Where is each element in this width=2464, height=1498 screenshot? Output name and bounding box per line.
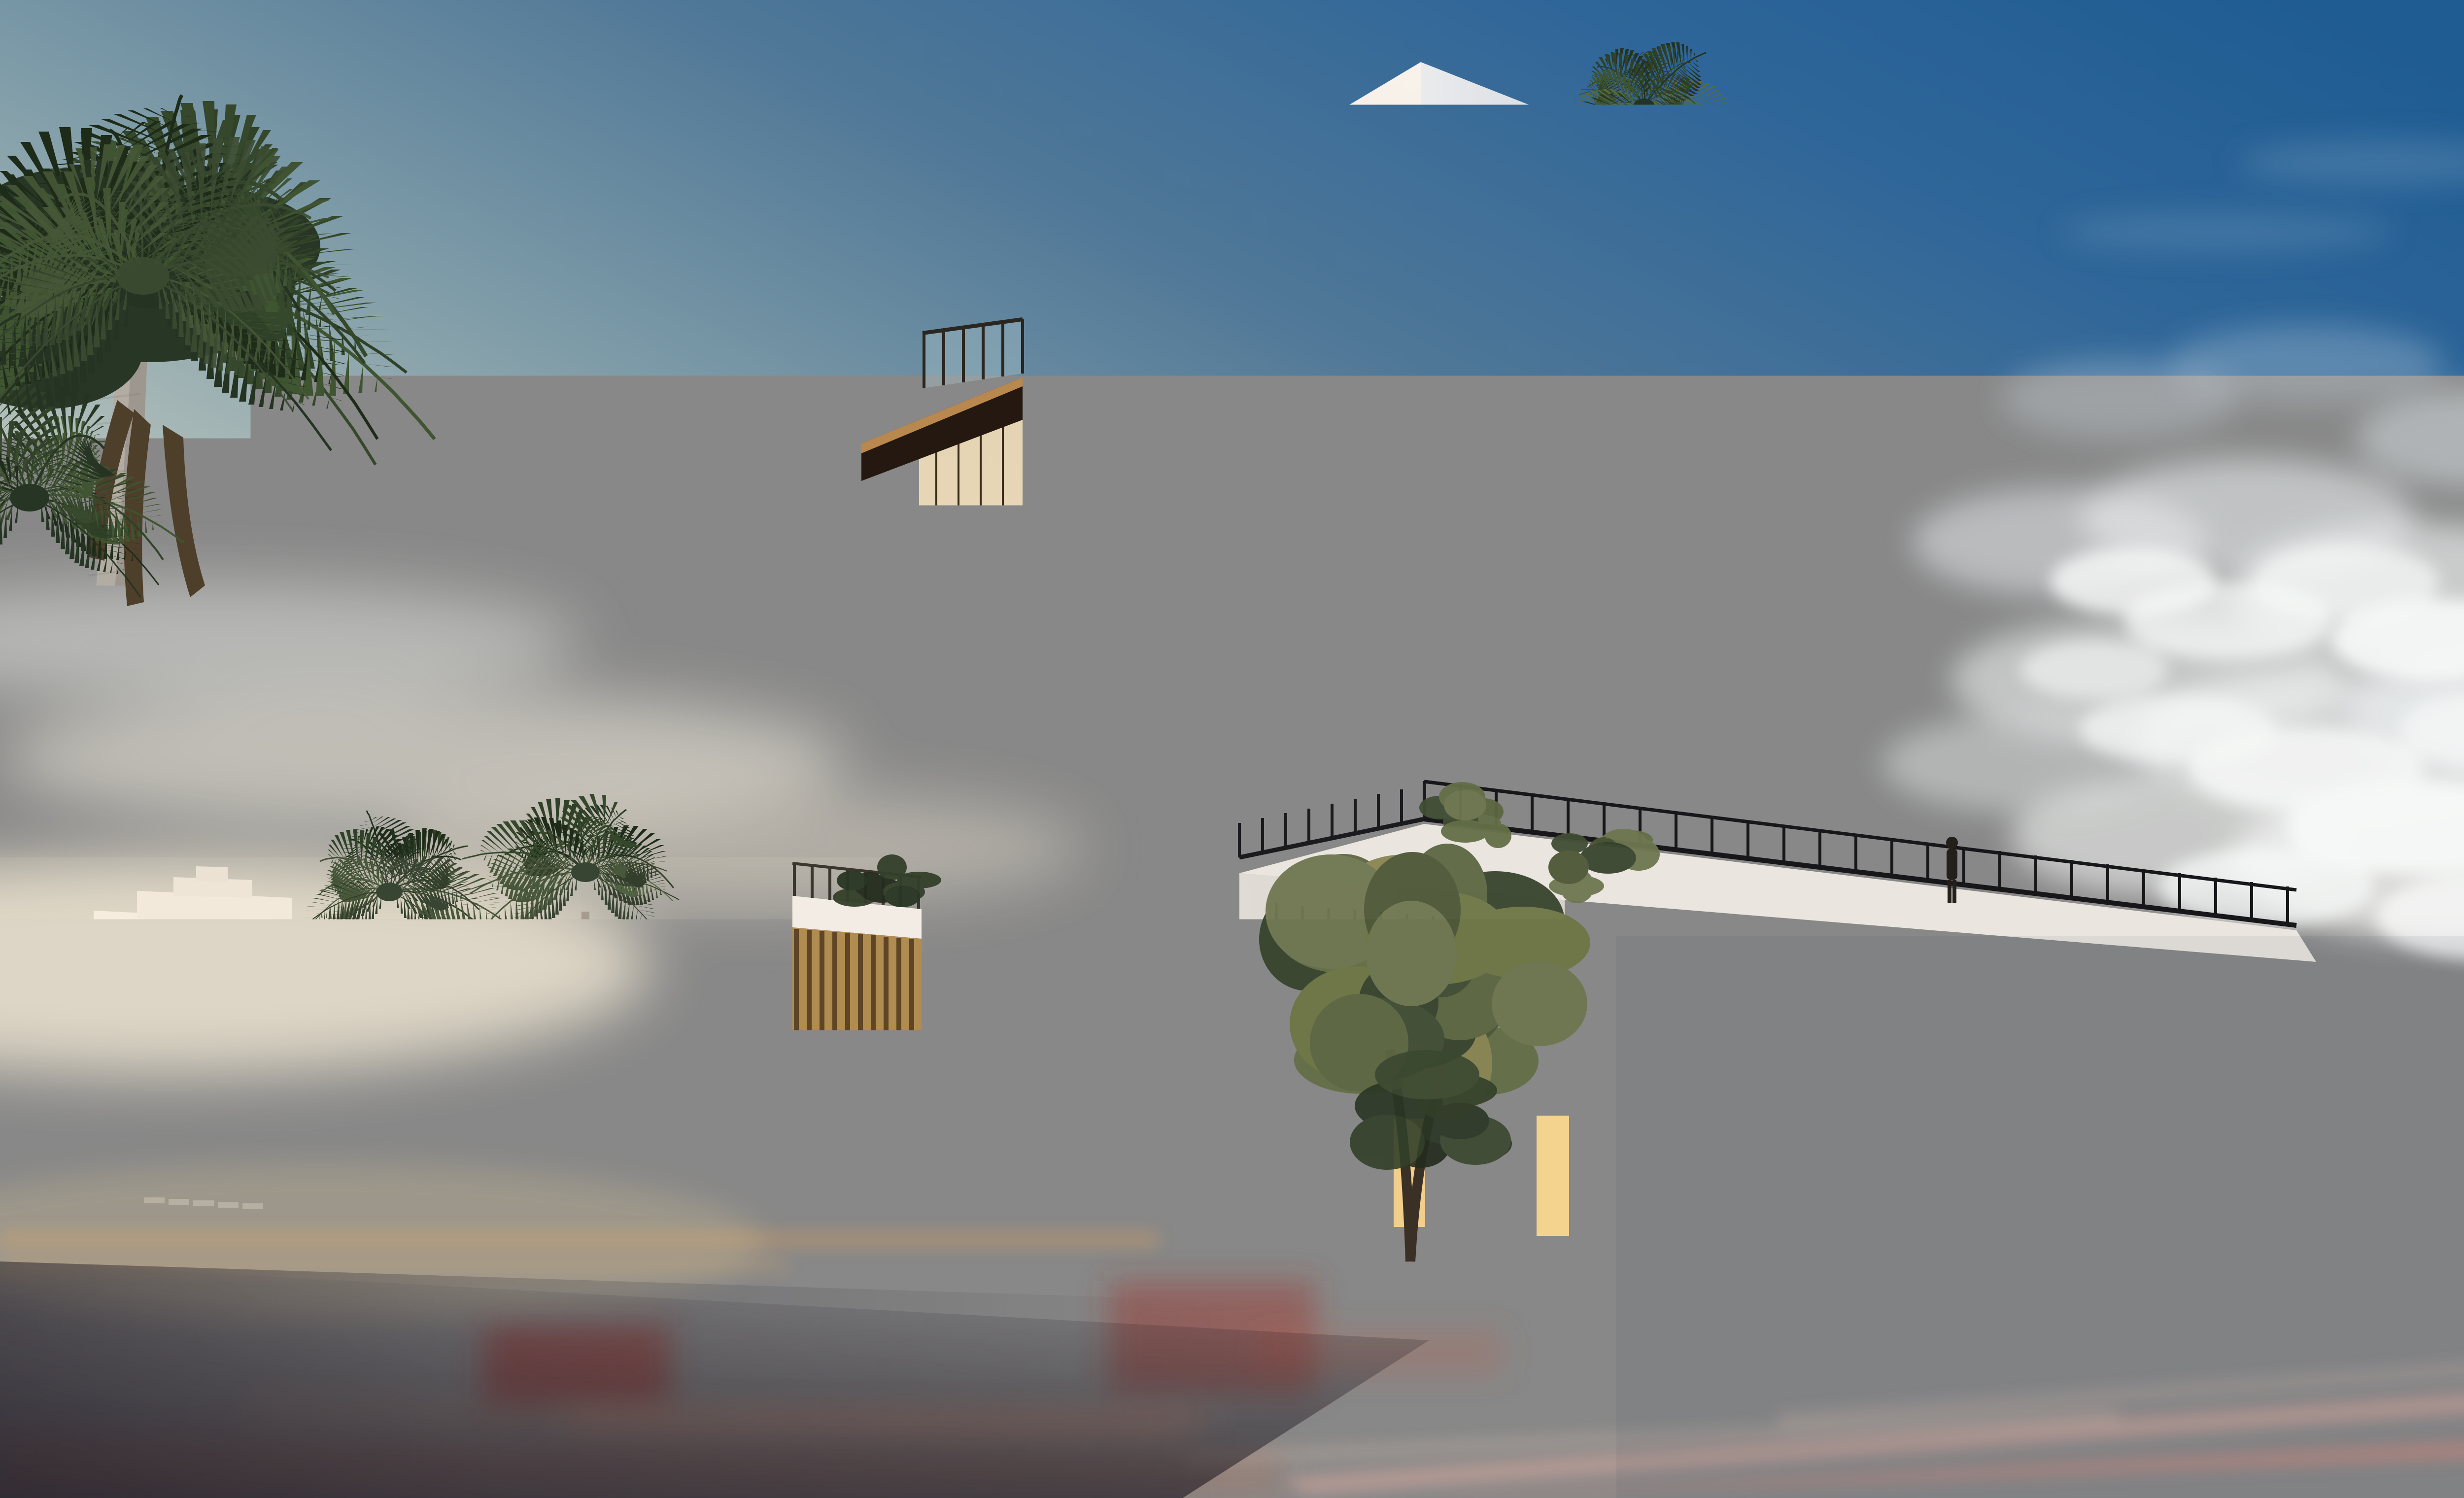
svg-text:Meridian: Meridian	[643, 982, 683, 993]
svg-text:PARKING: PARKING	[1225, 1093, 1239, 1253]
